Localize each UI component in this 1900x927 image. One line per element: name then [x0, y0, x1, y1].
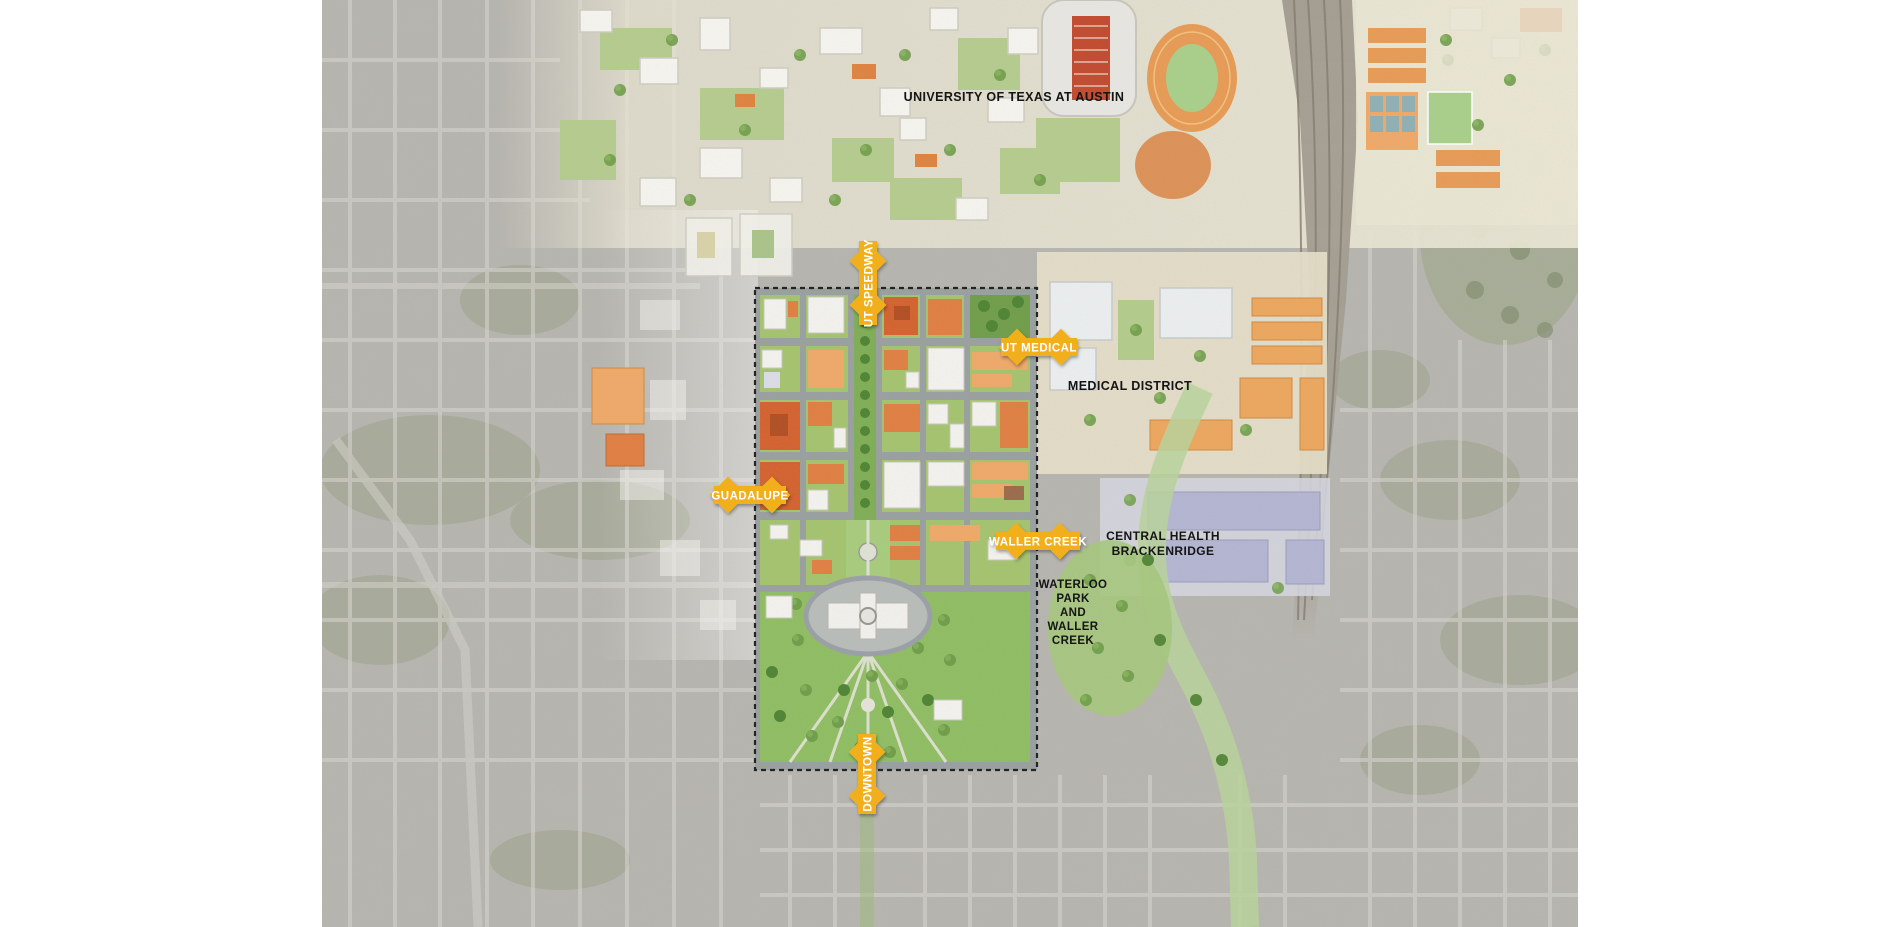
svg-text:WATERLOO: WATERLOO	[1039, 579, 1108, 591]
svg-text:CENTRAL HEALTH: CENTRAL HEALTH	[1106, 529, 1220, 543]
svg-text:CREEK: CREEK	[1052, 635, 1095, 647]
master-plan-map: UNIVERSITY OF TEXAS AT AUSTIN MEDICAL DI…	[0, 0, 1900, 927]
svg-text:AND: AND	[1060, 607, 1086, 619]
svg-text:BRACKENRIDGE: BRACKENRIDGE	[1112, 544, 1215, 558]
label-central-health: CENTRAL HEALTH BRACKENRIDGE	[1106, 529, 1220, 558]
grain-overlay	[322, 0, 1578, 927]
label-university: UNIVERSITY OF TEXAS AT AUSTIN	[904, 90, 1125, 104]
svg-text:UT MEDICAL: UT MEDICAL	[1001, 343, 1077, 355]
label-medical-district: MEDICAL DISTRICT	[1068, 379, 1192, 393]
svg-text:WALLER: WALLER	[1048, 621, 1099, 633]
svg-text:UT SPEEDWAY: UT SPEEDWAY	[864, 239, 876, 327]
svg-text:PARK: PARK	[1056, 593, 1090, 605]
svg-text:WALLER CREEK: WALLER CREEK	[989, 537, 1087, 549]
svg-text:DOWNTOWN: DOWNTOWN	[863, 736, 875, 811]
map-canvas: UNIVERSITY OF TEXAS AT AUSTIN MEDICAL DI…	[0, 0, 1900, 927]
svg-text:GUADALUPE: GUADALUPE	[711, 491, 788, 503]
